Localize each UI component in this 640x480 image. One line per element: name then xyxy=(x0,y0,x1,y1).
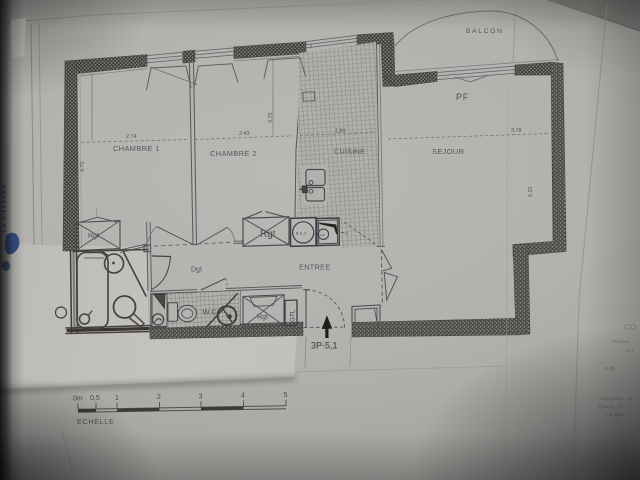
svg-text:R.45: R.45 xyxy=(605,366,615,371)
svg-text:Rgt: Rgt xyxy=(88,233,99,240)
svg-text:LA DIFFEREN: LA DIFFEREN xyxy=(2,184,8,232)
svg-text:CHAMBRE 1: CHAMBRE 1 xyxy=(113,144,160,153)
svg-text:Séga smsé - 13: Séga smsé - 13 xyxy=(600,396,633,401)
svg-text:vmc: vmc xyxy=(320,233,326,237)
svg-text:GTL: GTL xyxy=(290,309,297,322)
svg-text:5.20: 5.20 xyxy=(528,187,534,198)
svg-text:CHAMBRE 2: CHAMBRE 2 xyxy=(210,149,257,158)
svg-text:3.78: 3.78 xyxy=(511,128,522,134)
svg-text:1: 1 xyxy=(115,395,119,402)
svg-text:Rgt: Rgt xyxy=(260,229,276,240)
svg-text:Rgt: Rgt xyxy=(257,314,268,321)
svg-text:2: 2 xyxy=(157,394,161,401)
svg-text:3P-5,1: 3P-5,1 xyxy=(311,341,338,351)
svg-text:c à 4gan: c à 4gan xyxy=(606,412,624,417)
svg-text:PF: PF xyxy=(456,92,469,102)
svg-text:W.C.: W.C. xyxy=(203,308,219,317)
svg-text:4: 4 xyxy=(241,393,245,400)
svg-text:3: 3 xyxy=(199,393,203,400)
svg-text:BALCON: BALCON xyxy=(466,28,504,35)
svg-text:.1: .1 xyxy=(345,231,349,236)
svg-text:Pistacio - 17: Pistacio - 17 xyxy=(598,404,624,409)
svg-text:2.74: 2.74 xyxy=(126,134,137,140)
svg-text:ENTREE: ENTREE xyxy=(299,263,331,272)
svg-text:ECHELLE: ECHELLE xyxy=(77,419,115,426)
svg-text:5/13 avs: 5/13 avs xyxy=(612,339,630,344)
svg-text:CUISINE: CUISINE xyxy=(334,147,365,156)
svg-text:5: 5 xyxy=(284,392,288,399)
svg-text:1.80: 1.80 xyxy=(335,129,346,135)
svg-text:0m: 0m xyxy=(73,396,83,403)
svg-text:2.43: 2.43 xyxy=(239,131,250,137)
svg-text:B.E.C: B.E.C xyxy=(296,231,307,235)
svg-text:SEJOUR: SEJOUR xyxy=(432,147,464,156)
svg-text:m.2: m.2 xyxy=(626,348,634,353)
svg-text:CO: CO xyxy=(624,323,637,332)
svg-text:Dgt: Dgt xyxy=(191,267,202,274)
svg-text:4.70: 4.70 xyxy=(80,162,86,173)
svg-text:0,5: 0,5 xyxy=(90,395,100,402)
